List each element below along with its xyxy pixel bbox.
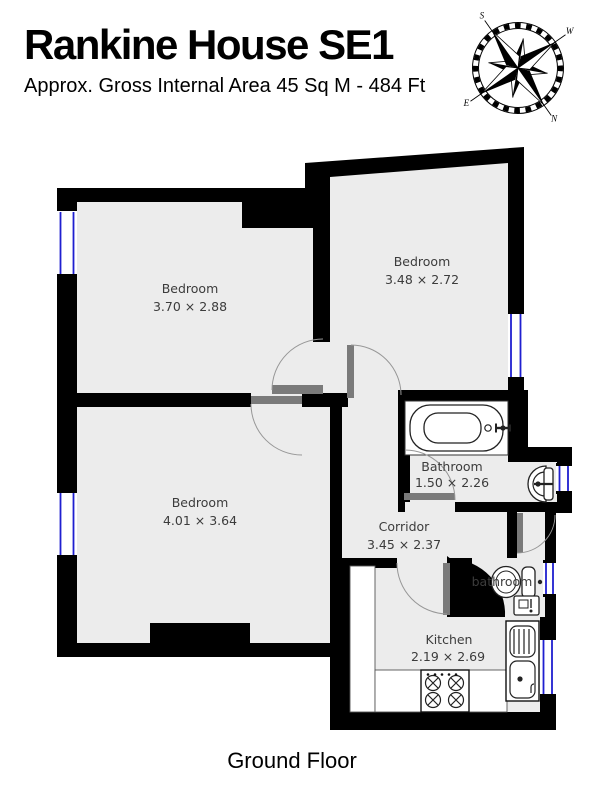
label-bathroom-small: bathroom [472, 574, 533, 589]
dims-bedroom-top-left: 3.70 × 2.88 [153, 299, 227, 314]
page-subtitle: Approx. Gross Internal Area 45 Sq M - 48… [24, 75, 426, 97]
label-bedroom-top-right: Bedroom [394, 254, 451, 269]
floor-corridor [342, 398, 398, 558]
door-leaf-bathroom-small [517, 513, 523, 553]
window-bathroom-small [543, 560, 556, 597]
window-kitchen [540, 637, 556, 697]
label-corridor: Corridor [379, 519, 430, 534]
doorway-bathroom [405, 502, 455, 512]
dims-kitchen: 2.19 × 2.69 [411, 649, 485, 664]
compass-west-label: W [566, 26, 575, 36]
door-leaf-bedroom-top-left [272, 385, 323, 394]
compass-north-label: N [550, 114, 558, 124]
floorplan-page: Rankine House SE1 Approx. Gross Internal… [0, 0, 612, 800]
compass-rose-icon: N S E W [422, 0, 612, 163]
dims-corridor: 3.45 × 2.37 [367, 537, 441, 552]
window-bedroom-top-left [57, 208, 77, 277]
boiler-icon [514, 596, 539, 615]
window-sink-niche [556, 463, 572, 494]
compass-south-label: S [480, 10, 485, 20]
window-bedroom-top-right [508, 311, 524, 380]
door-leaf-bedroom-top-right [347, 345, 354, 398]
dims-bathroom: 1.50 × 2.26 [415, 475, 489, 490]
doorway-kitchen [397, 558, 447, 568]
bathtub-icon [405, 401, 511, 455]
floor-bedroom-top-left [77, 202, 313, 393]
label-bathroom: Bathroom [421, 459, 482, 474]
label-kitchen: Kitchen [426, 632, 473, 647]
dims-bedroom-lower-left: 4.01 × 3.64 [163, 513, 237, 528]
stove-icon [421, 670, 469, 712]
compass-east-label: E [463, 98, 470, 108]
door-leaf-bathroom [404, 493, 455, 500]
door-leaf-kitchen [443, 563, 450, 615]
doorway-bedroom-top-right [348, 393, 398, 407]
door-leaf-bedroom-lower-left [251, 396, 302, 404]
dims-bedroom-top-right: 3.48 × 2.72 [385, 272, 459, 287]
window-bedroom-lower-left [57, 490, 77, 558]
floor-label: Ground Floor [227, 748, 357, 773]
label-bedroom-top-left: Bedroom [162, 281, 219, 296]
label-bedroom-lower-left: Bedroom [172, 495, 229, 510]
page-title: Rankine House SE1 [24, 21, 394, 68]
kitchen-sink-icon [506, 621, 539, 701]
floorplan-drawing: Rankine House SE1 Approx. Gross Internal… [0, 0, 612, 800]
